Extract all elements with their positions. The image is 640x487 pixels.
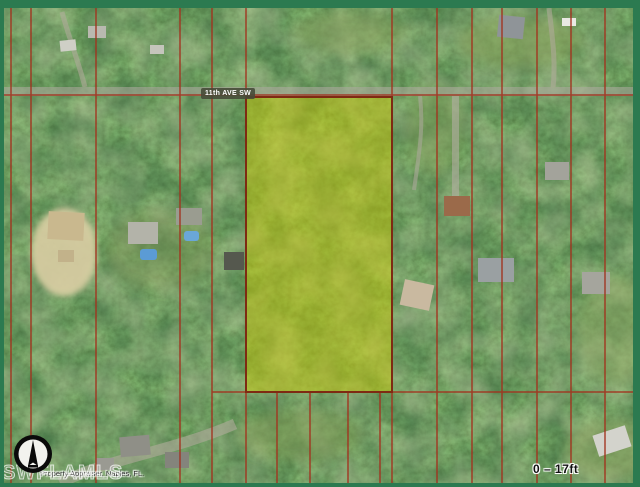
frame-top [0, 0, 640, 8]
street-label: 11th AVE SW [201, 88, 255, 99]
frame-bottom [0, 483, 640, 487]
highlighted-parcel [246, 97, 392, 392]
frame-right [633, 0, 640, 487]
frame-left [0, 0, 4, 487]
scale-label: 0 – 17ft [533, 463, 578, 475]
north-compass-icon [11, 428, 55, 478]
aerial-map: 11th AVE SW SWFLAMLS Property Appraiser,… [0, 0, 640, 487]
satellite-image [0, 0, 640, 487]
